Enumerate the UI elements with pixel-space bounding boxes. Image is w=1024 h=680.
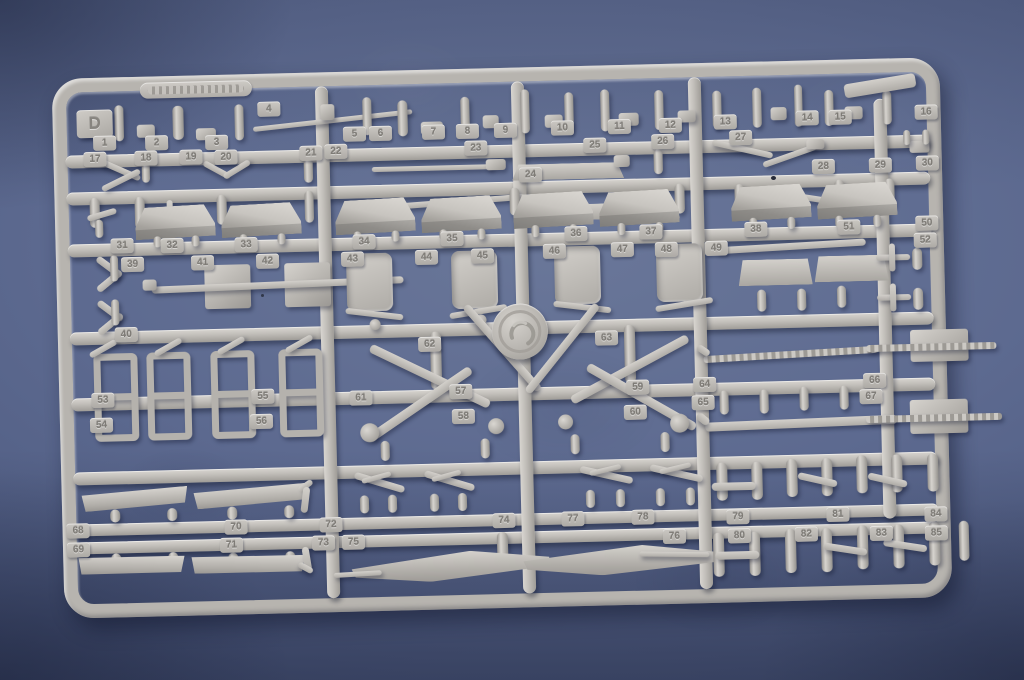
- part-cylinder: [380, 441, 389, 461]
- part-block: [142, 279, 156, 290]
- part-cylinder: [757, 290, 767, 312]
- part-number-tag: 39: [121, 257, 144, 273]
- part-cylinder: [837, 286, 847, 308]
- part-number-tag: 12: [659, 118, 682, 134]
- part-cylinder: [570, 434, 579, 454]
- part-cylinder: [660, 432, 669, 452]
- brand-medallion: [491, 303, 548, 360]
- part-number-tag: 56: [250, 414, 273, 430]
- part-block: [486, 159, 506, 170]
- mold-code-plate: [140, 80, 252, 99]
- part-number-tag: 85: [925, 525, 948, 541]
- part-cylinder: [799, 387, 809, 411]
- part-number-tag: 32: [160, 238, 183, 254]
- part-number-tag: 42: [256, 253, 279, 269]
- part-number-tag: 61: [349, 390, 372, 406]
- part-number-tag: 53: [91, 392, 114, 408]
- part-number-tag: 17: [83, 152, 106, 168]
- part-number-tag: 62: [418, 336, 441, 352]
- part-cylinder: [653, 149, 663, 174]
- part-cylinder: [616, 489, 625, 507]
- part-cylinder: [397, 100, 408, 136]
- dust-speck: [261, 294, 264, 297]
- part-number-tag: 45: [471, 248, 494, 264]
- sprue-runner-d: D 12345678910111213141516171819202122232…: [52, 57, 953, 619]
- part-number-tag: 74: [492, 513, 515, 529]
- part-number-tag: 63: [595, 330, 618, 346]
- part-number-tag: 84: [924, 506, 947, 522]
- part-ladder-frame: [146, 352, 192, 441]
- part-block: [770, 107, 786, 120]
- part-cylinder: [458, 493, 467, 511]
- part-cylinder: [922, 130, 929, 145]
- part-number-tag: 33: [234, 237, 257, 253]
- part-number-tag: 22: [324, 144, 347, 160]
- part-number-tag: 65: [691, 395, 714, 411]
- part-number-tag: 47: [611, 242, 634, 258]
- part-canopy: [334, 197, 416, 236]
- part-number-tag: 79: [726, 509, 749, 525]
- part-block: [320, 104, 334, 120]
- part-number-tag: 5: [343, 126, 366, 142]
- part-bar: [889, 243, 896, 271]
- part-number-tag: 19: [179, 149, 202, 165]
- part-number-tag: 1: [93, 135, 116, 151]
- part-number-tag: 21: [299, 145, 322, 161]
- part-block: [806, 139, 824, 149]
- part-number-tag: 41: [191, 255, 214, 271]
- part-cylinder: [719, 390, 729, 414]
- part-number-tag: 80: [728, 528, 751, 544]
- part-number-tag: 57: [449, 384, 472, 400]
- part-number-tag: 59: [626, 379, 649, 395]
- part-cylinder: [873, 215, 881, 227]
- part-number-tag: 27: [729, 130, 752, 146]
- part-number-tag: 9: [494, 123, 517, 139]
- part-ladder-frame: [278, 348, 324, 437]
- part-number-tag: 18: [134, 150, 157, 166]
- part-number-tag: 75: [342, 534, 365, 550]
- part-number-tag: 24: [519, 167, 542, 183]
- part-number-tag: 13: [714, 114, 737, 130]
- part-cylinder: [959, 521, 970, 561]
- part-number-tag: 31: [110, 238, 133, 254]
- part-number-tag: 3: [205, 135, 228, 151]
- part-number-tag: 25: [583, 137, 606, 153]
- part-number-tag: 34: [352, 234, 375, 250]
- part-cylinder: [167, 508, 177, 521]
- part-canopy: [220, 202, 302, 239]
- part-number-tag: 4: [257, 101, 280, 117]
- part-bar: [639, 551, 709, 557]
- part-cylinder: [786, 459, 798, 497]
- part-number-tag: 70: [224, 519, 247, 535]
- part-number-tag: 51: [837, 219, 860, 235]
- part-number-tag: 10: [551, 120, 574, 136]
- part-bar: [715, 551, 759, 560]
- part-cylinder: [787, 217, 795, 229]
- part-number-tag: 14: [796, 110, 819, 126]
- photo-background: D 12345678910111213141516171819202122232…: [0, 0, 1024, 680]
- part-cylinder: [227, 507, 237, 520]
- part-cylinder: [480, 438, 489, 458]
- part-number-tag: 38: [744, 221, 767, 237]
- part-number-tag: 67: [859, 389, 882, 405]
- part-number-tag: 44: [415, 250, 438, 266]
- part-number-tag: 11: [608, 119, 631, 135]
- part-canopy: [598, 188, 680, 227]
- part-number-tag: 82: [795, 526, 818, 542]
- part-number-tag: 7: [422, 124, 445, 140]
- part-canopy: [420, 195, 502, 234]
- part-number-tag: 60: [624, 404, 647, 420]
- part-number-tag: 35: [440, 231, 463, 247]
- part-number-tag: 77: [561, 511, 584, 527]
- part-cylinder: [360, 495, 369, 513]
- part-cylinder: [903, 130, 910, 145]
- part-canopy: [512, 190, 594, 229]
- part-number-tag: 16: [914, 104, 937, 120]
- part-cylinder: [111, 299, 120, 325]
- part-number-tag: 73: [312, 535, 335, 551]
- part-number-tag: 36: [564, 226, 587, 242]
- part-number-tag: 50: [915, 215, 938, 231]
- part-cylinder: [839, 386, 849, 410]
- part-number-tag: 55: [251, 389, 274, 405]
- part-number-tag: 54: [90, 418, 113, 434]
- part-cylinder: [882, 90, 892, 124]
- part-number-tag: 40: [115, 327, 138, 343]
- part-number-tag: 49: [705, 240, 728, 256]
- part-cylinder: [913, 288, 924, 310]
- brand-logo-emboss: [491, 303, 548, 360]
- part-cylinder: [797, 289, 807, 311]
- part-number-tag: 68: [66, 523, 89, 539]
- part-number-tag: 66: [863, 373, 886, 389]
- part-cylinder: [284, 505, 294, 518]
- part-number-tag: 29: [869, 157, 892, 173]
- part-cylinder: [656, 488, 665, 506]
- part-canopy: [816, 181, 898, 220]
- part-number-tag: 15: [829, 109, 852, 125]
- part-number-tag: 48: [655, 242, 678, 258]
- part-number-tag: 58: [452, 409, 475, 425]
- part-number-tag: 69: [67, 542, 90, 558]
- sprue-letter-tab: D: [76, 109, 113, 138]
- sprue-letter: D: [88, 114, 101, 133]
- part-number-tag: 8: [456, 124, 479, 140]
- part-cylinder: [520, 89, 530, 133]
- part-cylinder: [531, 225, 539, 237]
- part-cylinder: [912, 248, 923, 270]
- part-cylinder: [617, 223, 625, 235]
- part-cylinder: [304, 159, 314, 183]
- part-number-tag: 37: [639, 224, 662, 240]
- part-block: [614, 155, 630, 167]
- part-number-tag: 2: [145, 135, 168, 151]
- part-cylinder: [751, 462, 763, 500]
- part-canopy: [730, 183, 812, 222]
- part-cylinder: [752, 88, 762, 128]
- part-cylinder: [172, 106, 184, 140]
- part-cylinder: [110, 255, 119, 281]
- part-cylinder: [95, 220, 103, 238]
- part-number-tag: 76: [663, 529, 686, 545]
- part-number-tag: 23: [464, 140, 487, 156]
- part-cylinder: [856, 455, 868, 493]
- part-cylinder: [430, 494, 439, 512]
- part-number-tag: 83: [870, 526, 893, 542]
- part-number-tag: 52: [914, 232, 937, 248]
- part-cylinder: [391, 230, 399, 241]
- part-number-tag: 81: [826, 507, 849, 523]
- part-bar: [712, 482, 756, 491]
- part-number-tag: 6: [369, 126, 392, 142]
- part-canopy: [134, 204, 216, 241]
- part-cylinder: [927, 453, 939, 491]
- part-bar: [890, 283, 897, 311]
- part-cylinder: [686, 487, 695, 505]
- part-cylinder: [477, 228, 485, 239]
- part-cylinder: [388, 495, 397, 513]
- dust-speck: [771, 176, 776, 180]
- part-cylinder: [234, 104, 244, 140]
- part-cylinder: [586, 490, 595, 508]
- part-cylinder: [191, 235, 199, 246]
- part-number-tag: 20: [214, 149, 237, 165]
- part-number-tag: 28: [812, 159, 835, 175]
- part-number-tag: 46: [543, 243, 566, 259]
- part-cylinder: [304, 191, 314, 223]
- part-cylinder: [759, 390, 769, 414]
- part-number-tag: 26: [651, 134, 674, 150]
- part-cylinder: [110, 509, 120, 522]
- part-shield: [738, 258, 813, 286]
- part-cylinder: [114, 105, 124, 141]
- part-number-tag: 78: [631, 509, 654, 525]
- part-number-tag: 72: [319, 517, 342, 533]
- part-number-tag: 64: [693, 377, 716, 393]
- part-number-tag: 71: [220, 537, 243, 553]
- part-number-tag: 43: [341, 251, 364, 267]
- part-number-tag: 30: [916, 155, 939, 171]
- part-cylinder: [277, 233, 285, 244]
